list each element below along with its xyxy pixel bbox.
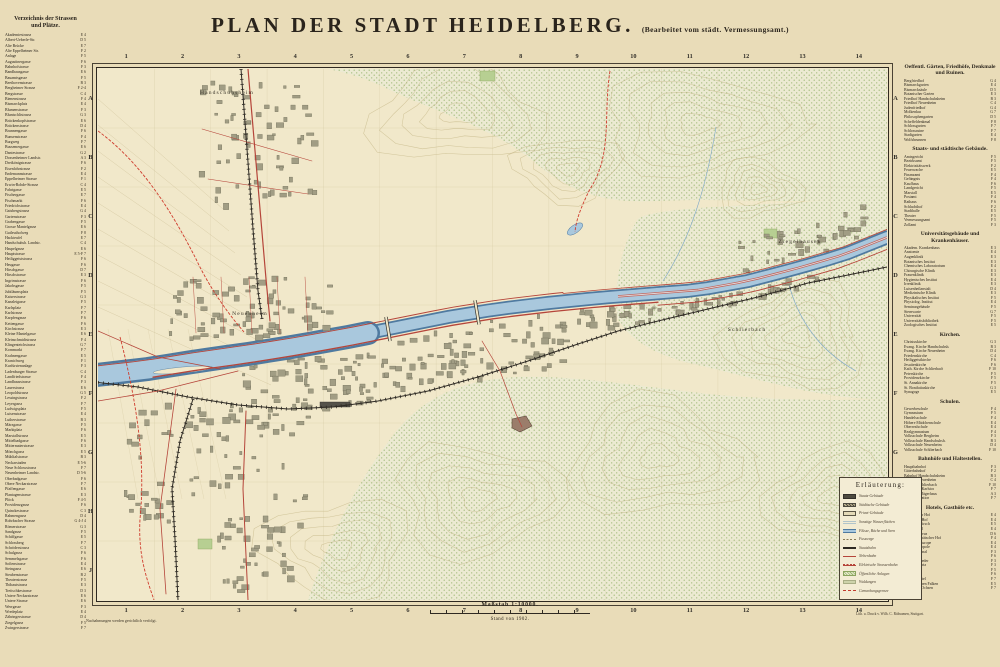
grid-label: 12 (718, 53, 774, 62)
grid-label: 3 (211, 607, 267, 616)
path-swatch-icon (843, 539, 856, 540)
legend-item: Öffentliche Anlagen (843, 569, 918, 578)
legend-item: Staatsbahn (843, 544, 918, 553)
grid-label: 7 (436, 53, 492, 62)
map-canvas: HandschuhsheimNeuenheimZiegelhausenSchli… (98, 69, 887, 600)
scale-block: Maßstab 1:10000. Stand von 1902. (418, 602, 602, 622)
grid-label: B (891, 128, 900, 187)
grid-label: C (86, 187, 95, 246)
section-heading: Schulen. (904, 399, 996, 405)
grid-label: H (86, 482, 95, 541)
section-heading: Universitätsgebäude und Krankenhäuser. (904, 231, 996, 244)
grid-label: F (86, 364, 95, 423)
priv-swatch-icon (843, 511, 856, 516)
anlage-swatch-icon (843, 571, 856, 576)
grid-label: 13 (774, 607, 830, 616)
grid-label: 2 (154, 53, 210, 62)
grid-label: G (891, 423, 900, 482)
section-heading: Kirchen. (904, 332, 996, 338)
street-index-heading: Verzeichnis der Strassen und Plätze. (3, 16, 88, 30)
neben-swatch-icon (843, 556, 856, 557)
grid-label: 10 (605, 607, 661, 616)
page-title: PLAN DER STADT HEIDELBERG.(Bearbeitet vo… (0, 13, 1000, 38)
printer-note: Lith. u. Druck v. Wilh. C. Rübsamen, Stu… (856, 612, 998, 616)
water2-swatch-icon (843, 520, 856, 524)
grid-label: A (86, 69, 95, 128)
legend-item: Flüsse, Bäche und Seen (843, 526, 918, 535)
grid-label: 13 (774, 53, 830, 62)
stand-date: Stand von 1902. (418, 617, 602, 622)
wald-swatch-icon (843, 580, 856, 585)
grid-label: F (891, 364, 900, 423)
map-place-label: Ziegelhausen (778, 239, 821, 245)
legend-rows: Staats-GebäudeStädtische GebäudePrivat-G… (843, 492, 918, 595)
grid-label: 11 (662, 607, 718, 616)
map-title: PLAN DER STADT HEIDELBERG. (211, 13, 634, 37)
grid-label: B (86, 128, 95, 187)
bahn-swatch-icon (843, 547, 856, 549)
state-swatch-icon (843, 494, 856, 499)
legend-item: Elektrische Strassenbahn (843, 561, 918, 570)
map-place-label: Schlierbach (728, 327, 767, 333)
grid-label: J (86, 541, 95, 600)
grid-label: G (86, 423, 95, 482)
grid-label: 4 (267, 607, 323, 616)
section-heading: Bahnhöfe und Haltestellen. (904, 456, 996, 462)
map-place-label: Neuenheim (232, 311, 268, 317)
grid-label: 5 (323, 607, 379, 616)
scale-bar (430, 610, 590, 614)
grid-label: 1 (98, 53, 154, 62)
grid-label: 2 (154, 607, 210, 616)
grid-label: A (891, 69, 900, 128)
grid-label: 12 (718, 607, 774, 616)
grid-label: 3 (211, 53, 267, 62)
index-entry: SynagogeE 5 (902, 390, 998, 395)
grid-label: 8 (493, 53, 549, 62)
grid-label: 5 (323, 53, 379, 62)
scale-label: Maßstab 1:10000. (418, 602, 602, 608)
map-place-label: Handschuhsheim (200, 90, 254, 96)
river-swatch-icon (843, 529, 856, 533)
grid-label: 6 (380, 53, 436, 62)
legend-item: Sonstige Wasserflächen (843, 518, 918, 527)
section-heading: Oeffentl. Gärten, Friedhöfe, Denkmale un… (904, 64, 996, 77)
index-entry: ZollamtF 3 (902, 223, 998, 228)
legend-item: Staats-Gebäude (843, 492, 918, 501)
street-index: Verzeichnis der Strassen und Plätze. Aka… (3, 16, 88, 632)
grid-label: 11 (662, 53, 718, 62)
legend-item: Städtische Gebäude (843, 501, 918, 510)
index-entry: Zoologisches InstitutE 5 (902, 323, 998, 328)
grid-label: 10 (605, 53, 661, 62)
grid-label: D (891, 246, 900, 305)
legend-item: Nebenbahn (843, 552, 918, 561)
legend-title: Erläuterung: (843, 481, 918, 489)
grid-label: E (891, 305, 900, 364)
index-entry: ZwingerstrasseF 7 (3, 626, 88, 631)
legend-item: Gemarkungsgrenze (843, 587, 918, 596)
legend-item: Fusswege (843, 535, 918, 544)
map-subtitle: (Bearbeitet vom städt. Vermessungsamt.) (642, 25, 789, 34)
grid-label: C (891, 187, 900, 246)
copyright-note: Nachahmungen werden gerichtlich verfolgt… (86, 618, 157, 623)
grid-numbers-top: 1234567891011121314 (98, 53, 887, 62)
index-entry: WolfsbrunnenF 8 (902, 138, 998, 143)
legend-box: Erläuterung: Staats-GebäudeStädtische Ge… (839, 477, 922, 600)
section-heading: Staats- und städtische Gebäude. (904, 146, 996, 152)
grid-letters-left: ABCDEFGHJ (86, 69, 95, 600)
grid-label: D (86, 246, 95, 305)
city-swatch-icon (843, 503, 856, 508)
grid-label: 9 (549, 53, 605, 62)
grenze-swatch-icon (843, 590, 856, 591)
tram-swatch-icon (843, 564, 856, 566)
street-list: AkademiestrasseE 4Albert-Ueberle-Str.D 5… (3, 33, 88, 632)
grid-label: 14 (831, 53, 887, 62)
grid-label: 4 (267, 53, 323, 62)
grid-label: E (86, 305, 95, 364)
index-entry: Volksschule SchlierbachF 10 (902, 448, 998, 453)
grid-label: 1 (98, 607, 154, 616)
legend-item: Waldungen (843, 578, 918, 587)
legend-item: Privat-Gebäude (843, 509, 918, 518)
